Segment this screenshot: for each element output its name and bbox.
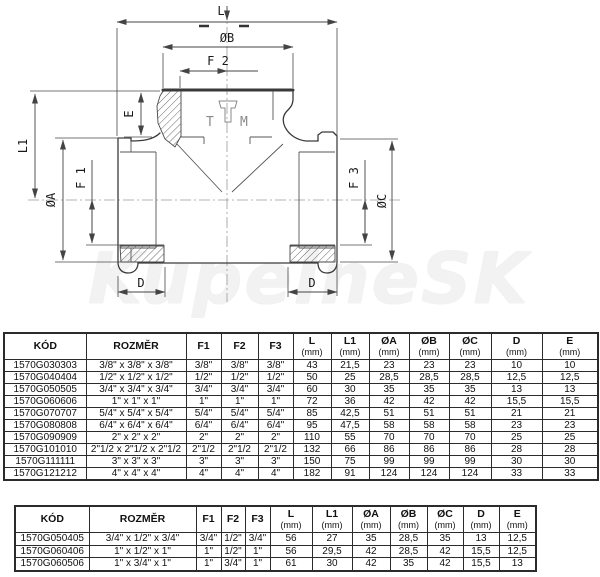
table-row: 1570G0404041/2" x 1/2" x 1/2"1/2"1/2"1/2… — [4, 372, 598, 384]
table-cell: 2" — [258, 432, 293, 444]
table-cell: 2" — [186, 432, 221, 444]
table-cell: 3" — [186, 456, 221, 468]
table-row: 1570G1010102"1/2 x 2"1/2 x 2"1/22"1/22"1… — [4, 444, 598, 456]
table-cell: 51 — [409, 408, 449, 420]
table-cell: 182 — [293, 468, 331, 481]
table-cell: 5/4" — [258, 408, 293, 420]
table-cell: 66 — [331, 444, 369, 456]
table-row: 1570G0606061" x 1" x 1"1"1"1"72364242421… — [4, 396, 598, 408]
table-cell: 12,5 — [542, 372, 598, 384]
table-cell: 5/4" — [186, 408, 221, 420]
table-cell: 6/4" x 6/4" x 6/4" — [86, 420, 186, 432]
header-row: KÓDROZMĚRF1F2F3L(mm)L1(mm)ØA(mm)ØB(mm)ØC… — [4, 333, 598, 360]
dim-label-F1: F 1 — [74, 167, 88, 189]
column-header: ROZMĚR — [89, 506, 196, 533]
table-cell: 30 — [542, 456, 598, 468]
table-cell: 50 — [293, 372, 331, 384]
column-header: E(mm) — [542, 333, 598, 360]
table-cell: 10 — [542, 360, 598, 372]
table-cell: 42 — [352, 558, 390, 571]
table-cell: 72 — [293, 396, 331, 408]
table-cell: 99 — [449, 456, 491, 468]
table-cell: 15,5 — [542, 396, 598, 408]
table-cell: 12,5 — [491, 372, 542, 384]
table-cell: 35 — [369, 384, 409, 396]
table-cell: 86 — [369, 444, 409, 456]
table-cell: 86 — [449, 444, 491, 456]
table-cell: 1/2" — [258, 372, 293, 384]
table-cell: 28,5 — [409, 372, 449, 384]
column-header: ØB(mm) — [409, 333, 449, 360]
table-cell: 13 — [491, 384, 542, 396]
table-cell: 3/4" — [196, 533, 221, 546]
table-cell: 15,5 — [491, 396, 542, 408]
table-cell: 3/4" — [245, 533, 270, 546]
table-cell: 1570G060606 — [4, 396, 86, 408]
table-cell: 30 — [331, 384, 369, 396]
table-cell: 1/2" — [221, 372, 258, 384]
table-cell: 42,5 — [331, 408, 369, 420]
dim-label-L1: L1 — [16, 139, 30, 153]
table-cell: 3/8" — [258, 360, 293, 372]
table-cell: 3/8" — [186, 360, 221, 372]
table-cell: 3/4" — [221, 384, 258, 396]
table-cell: 23 — [449, 360, 491, 372]
table-cell: 21,5 — [331, 360, 369, 372]
table-cell: 2"1/2 — [258, 444, 293, 456]
table-cell: 35 — [390, 558, 427, 571]
tee-fitting-drawing: T M — [0, 0, 600, 332]
table-cell: 29,5 — [312, 545, 352, 558]
tm-logo-letter-m: M — [240, 115, 248, 130]
fitting-internal-lines — [120, 91, 335, 263]
table-cell: 3/4" — [186, 384, 221, 396]
table-cell: 6/4" — [258, 420, 293, 432]
dim-label-F3: F 3 — [347, 167, 361, 189]
table-cell: 42 — [352, 545, 390, 558]
table-cell: 13 — [499, 558, 536, 571]
table-cell: 3" — [221, 456, 258, 468]
column-header: E(mm) — [499, 506, 536, 533]
table-cell: 21 — [491, 408, 542, 420]
column-header: L1(mm) — [331, 333, 369, 360]
table-cell: 1570G030303 — [4, 360, 86, 372]
table-body: 1570G0303033/8" x 3/8" x 3/8"3/8"3/8"3/8… — [4, 360, 598, 481]
column-header: KÓD — [15, 506, 89, 533]
table-cell: 21 — [542, 408, 598, 420]
table-row: 1570G0909092" x 2" x 2"2"2"2"11055707070… — [4, 432, 598, 444]
table-cell: 12,5 — [499, 533, 536, 546]
dim-label-D-right: D — [308, 276, 315, 290]
table-cell: 6/4" — [221, 420, 258, 432]
table-cell: 150 — [293, 456, 331, 468]
table-cell: 42 — [427, 558, 463, 571]
table-cell: 23 — [369, 360, 409, 372]
table-cell: 61 — [270, 558, 312, 571]
table-cell: 10 — [491, 360, 542, 372]
table-row: 1570G0604061" x 1/2" x 1"1"1/2"1"5629,54… — [15, 545, 536, 558]
table-cell: 2"1/2 — [186, 444, 221, 456]
table-cell: 1570G111111 — [4, 456, 86, 468]
table-cell: 1" — [221, 396, 258, 408]
column-header: L(mm) — [293, 333, 331, 360]
table-cell: 3/8" x 3/8" x 3/8" — [86, 360, 186, 372]
table-cell: 15,5 — [463, 545, 499, 558]
column-header: ØA(mm) — [352, 506, 390, 533]
column-header: L(mm) — [270, 506, 312, 533]
table-cell: 25 — [491, 432, 542, 444]
table-cell: 124 — [369, 468, 409, 481]
table-cell: 4" — [186, 468, 221, 481]
table-cell: 1" x 1" x 1" — [86, 396, 186, 408]
table-row: 1570G1212124" x 4" x 4"4"4"4"18291124124… — [4, 468, 598, 481]
table-cell: 1" — [258, 396, 293, 408]
table-cell: 110 — [293, 432, 331, 444]
column-header: D(mm) — [491, 333, 542, 360]
table-cell: 3" x 3" x 3" — [86, 456, 186, 468]
table-cell: 5/4" — [221, 408, 258, 420]
table-cell: 3/4" — [221, 558, 245, 571]
table-cell: 1570G121212 — [4, 468, 86, 481]
dim-label-F2: F 2 — [207, 54, 229, 68]
table-cell: 3/4" — [258, 384, 293, 396]
extension-lines — [30, 28, 398, 297]
table-cell: 28 — [491, 444, 542, 456]
column-header: D(mm) — [463, 506, 499, 533]
table-cell: 36 — [331, 396, 369, 408]
table-cell: 1570G090909 — [4, 432, 86, 444]
table-cell: 30 — [312, 558, 352, 571]
table-cell: 25 — [331, 372, 369, 384]
table-cell: 4" — [221, 468, 258, 481]
table-header: KÓDROZMĚRF1F2F3L(mm)L1(mm)ØA(mm)ØB(mm)ØC… — [15, 506, 536, 533]
table-cell: 35 — [409, 384, 449, 396]
column-header: F1 — [196, 506, 221, 533]
table-cell: 30 — [491, 456, 542, 468]
table-cell: 1" — [196, 558, 221, 571]
table-cell: 3/4" x 1/2" x 3/4" — [89, 533, 196, 546]
table-cell: 2"1/2 x 2"1/2 x 2"1/2 — [86, 444, 186, 456]
column-header: ØC(mm) — [427, 506, 463, 533]
dimensions-table-reducing-tees: KÓDROZMĚRF1F2F3L(mm)L1(mm)ØA(mm)ØB(mm)ØC… — [14, 505, 536, 572]
table-cell: 23 — [409, 360, 449, 372]
table-cell: 4" x 4" x 4" — [86, 468, 186, 481]
table-cell: 99 — [409, 456, 449, 468]
table-cell: 1" — [186, 396, 221, 408]
table-cell: 1570G070707 — [4, 408, 86, 420]
column-header: L1(mm) — [312, 506, 352, 533]
table-cell: 42 — [427, 545, 463, 558]
dim-label-E: E — [122, 110, 136, 117]
dim-label-OB: ØB — [220, 31, 234, 45]
table-cell: 85 — [293, 408, 331, 420]
table-cell: 2" — [221, 432, 258, 444]
table-cell: 13 — [542, 384, 598, 396]
table-cell: 1570G050505 — [4, 384, 86, 396]
table-cell: 2"1/2 — [221, 444, 258, 456]
table-cell: 25 — [542, 432, 598, 444]
column-header: ØC(mm) — [449, 333, 491, 360]
dimension-lines — [35, 6, 392, 292]
table-row: 1570G0504053/4" x 1/2" x 3/4"3/4"1/2"3/4… — [15, 533, 536, 546]
dimensions-table-equal-tees: KÓDROZMĚRF1F2F3L(mm)L1(mm)ØA(mm)ØB(mm)ØC… — [3, 332, 597, 481]
table-cell: 42 — [409, 396, 449, 408]
column-header: KÓD — [4, 333, 86, 360]
table-cell: 28,5 — [390, 545, 427, 558]
table-cell: 1570G060506 — [15, 558, 89, 571]
dim-label-L: L — [217, 4, 224, 18]
table-cell: 33 — [542, 468, 598, 481]
table-cell: 1/2" — [221, 545, 245, 558]
table-cell: 15,5 — [463, 558, 499, 571]
table-cell: 1570G060406 — [15, 545, 89, 558]
table-cell: 70 — [369, 432, 409, 444]
table-cell: 58 — [369, 420, 409, 432]
table-cell: 99 — [369, 456, 409, 468]
table-cell: 35 — [427, 533, 463, 546]
table-cell: 23 — [542, 420, 598, 432]
table-cell: 28,5 — [369, 372, 409, 384]
table-cell: 27 — [312, 533, 352, 546]
table-cell: 28 — [542, 444, 598, 456]
table-cell: 35 — [449, 384, 491, 396]
table-cell: 132 — [293, 444, 331, 456]
table-row: 1570G0707075/4" x 5/4" x 5/4"5/4"5/4"5/4… — [4, 408, 598, 420]
table-cell: 23 — [491, 420, 542, 432]
table-cell: 70 — [409, 432, 449, 444]
table-cell: 35 — [352, 533, 390, 546]
table-cell: 56 — [270, 545, 312, 558]
table-cell: 124 — [409, 468, 449, 481]
table-cell: 1" — [196, 545, 221, 558]
table-cell: 55 — [331, 432, 369, 444]
table-cell: 3" — [258, 456, 293, 468]
table-cell: 3/4" x 3/4" x 3/4" — [86, 384, 186, 396]
table-cell: 42 — [449, 396, 491, 408]
table-cell: 42 — [369, 396, 409, 408]
table-cell: 58 — [449, 420, 491, 432]
table-cell: 5/4" x 5/4" x 5/4" — [86, 408, 186, 420]
dim-label-OC: ØC — [375, 194, 389, 208]
table-row: 1570G1111113" x 3" x 3"3"3"3"15075999999… — [4, 456, 598, 468]
section-hatch — [120, 91, 335, 262]
table-cell: 4" — [258, 468, 293, 481]
table-cell: 1" — [245, 558, 270, 571]
table-body: 1570G0504053/4" x 1/2" x 3/4"3/4"1/2"3/4… — [15, 533, 536, 571]
table-cell: 12,5 — [499, 545, 536, 558]
table-cell: 75 — [331, 456, 369, 468]
table-cell: 1/2" — [221, 533, 245, 546]
table-cell: 1570G101010 — [4, 444, 86, 456]
table-cell: 1/2" — [186, 372, 221, 384]
dimensions-table: KÓDROZMĚRF1F2F3L(mm)L1(mm)ØA(mm)ØB(mm)ØC… — [14, 505, 537, 572]
table-cell: 43 — [293, 360, 331, 372]
table-cell: 60 — [293, 384, 331, 396]
table-cell: 1/2" x 1/2" x 1/2" — [86, 372, 186, 384]
table-row: 1570G0605061" x 3/4" x 1"1"3/4"1"6130423… — [15, 558, 536, 571]
column-header: ØA(mm) — [369, 333, 409, 360]
table-cell: 91 — [331, 468, 369, 481]
table-cell: 1570G050405 — [15, 533, 89, 546]
table-cell: 1" — [245, 545, 270, 558]
table-cell: 86 — [409, 444, 449, 456]
table-cell: 28,5 — [449, 372, 491, 384]
centerlines — [28, 8, 402, 302]
dim-label-D-left: D — [137, 276, 144, 290]
tm-logo-letter-t: T — [206, 115, 214, 130]
column-header: ROZMĚR — [86, 333, 186, 360]
column-header: F1 — [186, 333, 221, 360]
header-row: KÓDROZMĚRF1F2F3L(mm)L1(mm)ØA(mm)ØB(mm)ØC… — [15, 506, 536, 533]
table-cell: 70 — [449, 432, 491, 444]
table-cell: 95 — [293, 420, 331, 432]
table-cell: 13 — [463, 533, 499, 546]
table-cell: 2" x 2" x 2" — [86, 432, 186, 444]
dimensions-table: KÓDROZMĚRF1F2F3L(mm)L1(mm)ØA(mm)ØB(mm)ØC… — [3, 332, 599, 481]
table-cell: 47,5 — [331, 420, 369, 432]
table-cell: 56 — [270, 533, 312, 546]
table-cell: 1570G080808 — [4, 420, 86, 432]
table-row: 1570G0505053/4" x 3/4" x 3/4"3/4"3/4"3/4… — [4, 384, 598, 396]
table-cell: 1" x 1/2" x 1" — [89, 545, 196, 558]
column-header: F2 — [221, 506, 245, 533]
table-cell: 3/8" — [221, 360, 258, 372]
table-row: 1570G0303033/8" x 3/8" x 3/8"3/8"3/8"3/8… — [4, 360, 598, 372]
table-cell: 33 — [491, 468, 542, 481]
column-header: F2 — [221, 333, 258, 360]
column-header: F3 — [258, 333, 293, 360]
table-cell: 1" x 3/4" x 1" — [89, 558, 196, 571]
table-header: KÓDROZMĚRF1F2F3L(mm)L1(mm)ØA(mm)ØB(mm)ØC… — [4, 333, 598, 360]
column-header: ØB(mm) — [390, 506, 427, 533]
catalog-page: KupelneSK — [0, 0, 600, 577]
table-cell: 51 — [449, 408, 491, 420]
dim-label-OA: ØA — [44, 192, 58, 207]
table-cell: 28,5 — [390, 533, 427, 546]
table-cell: 1570G040404 — [4, 372, 86, 384]
table-cell: 51 — [369, 408, 409, 420]
table-row: 1570G0808086/4" x 6/4" x 6/4"6/4"6/4"6/4… — [4, 420, 598, 432]
table-cell: 124 — [449, 468, 491, 481]
table-cell: 58 — [409, 420, 449, 432]
column-header: F3 — [245, 506, 270, 533]
tee-glyph-icon — [219, 101, 237, 122]
table-cell: 6/4" — [186, 420, 221, 432]
